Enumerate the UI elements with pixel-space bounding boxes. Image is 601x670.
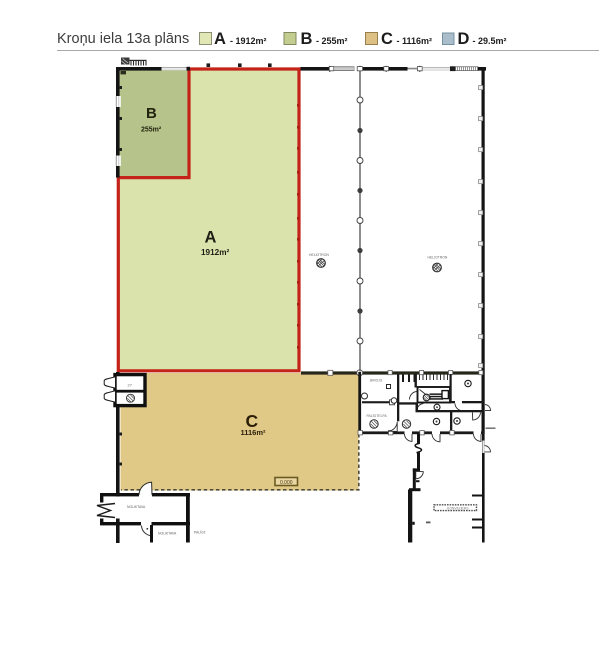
svg-text:B: B xyxy=(301,30,313,48)
svg-text:A: A xyxy=(214,30,226,48)
svg-text:1912m²: 1912m² xyxy=(201,248,229,257)
svg-text:- 1912m²: - 1912m² xyxy=(230,36,267,46)
svg-text:1116m²: 1116m² xyxy=(241,428,267,437)
svg-text:Kroņu iela 13a plāns: Kroņu iela 13a plāns xyxy=(57,31,189,47)
svg-text:NOLIKTAVA: NOLIKTAVA xyxy=(127,505,146,509)
svg-text:PALĪGT.: PALĪGT. xyxy=(194,531,206,535)
svg-text:- 1116m²: - 1116m² xyxy=(397,36,433,46)
svg-text:- 29.5m²: - 29.5m² xyxy=(473,36,507,46)
svg-text:PALĪGTELPA: PALĪGTELPA xyxy=(367,414,388,418)
svg-text:KONVEIJERS: KONVEIJERS xyxy=(447,507,469,511)
svg-text:0.000: 0.000 xyxy=(280,480,293,486)
svg-text:C: C xyxy=(381,30,393,48)
svg-text:D: D xyxy=(458,30,470,48)
svg-text:B: B xyxy=(146,105,157,122)
svg-text:255m²: 255m² xyxy=(141,127,162,134)
svg-text:HELIOTRON: HELIOTRON xyxy=(428,256,448,260)
svg-text:A: A xyxy=(205,229,217,247)
svg-text:BIROJS: BIROJS xyxy=(370,379,383,383)
svg-text:NOLIKTAVA: NOLIKTAVA xyxy=(158,532,177,536)
svg-text:HELIOTRON: HELIOTRON xyxy=(309,253,329,257)
svg-text:- 255m²: - 255m² xyxy=(316,36,348,46)
svg-text:27: 27 xyxy=(128,383,133,388)
